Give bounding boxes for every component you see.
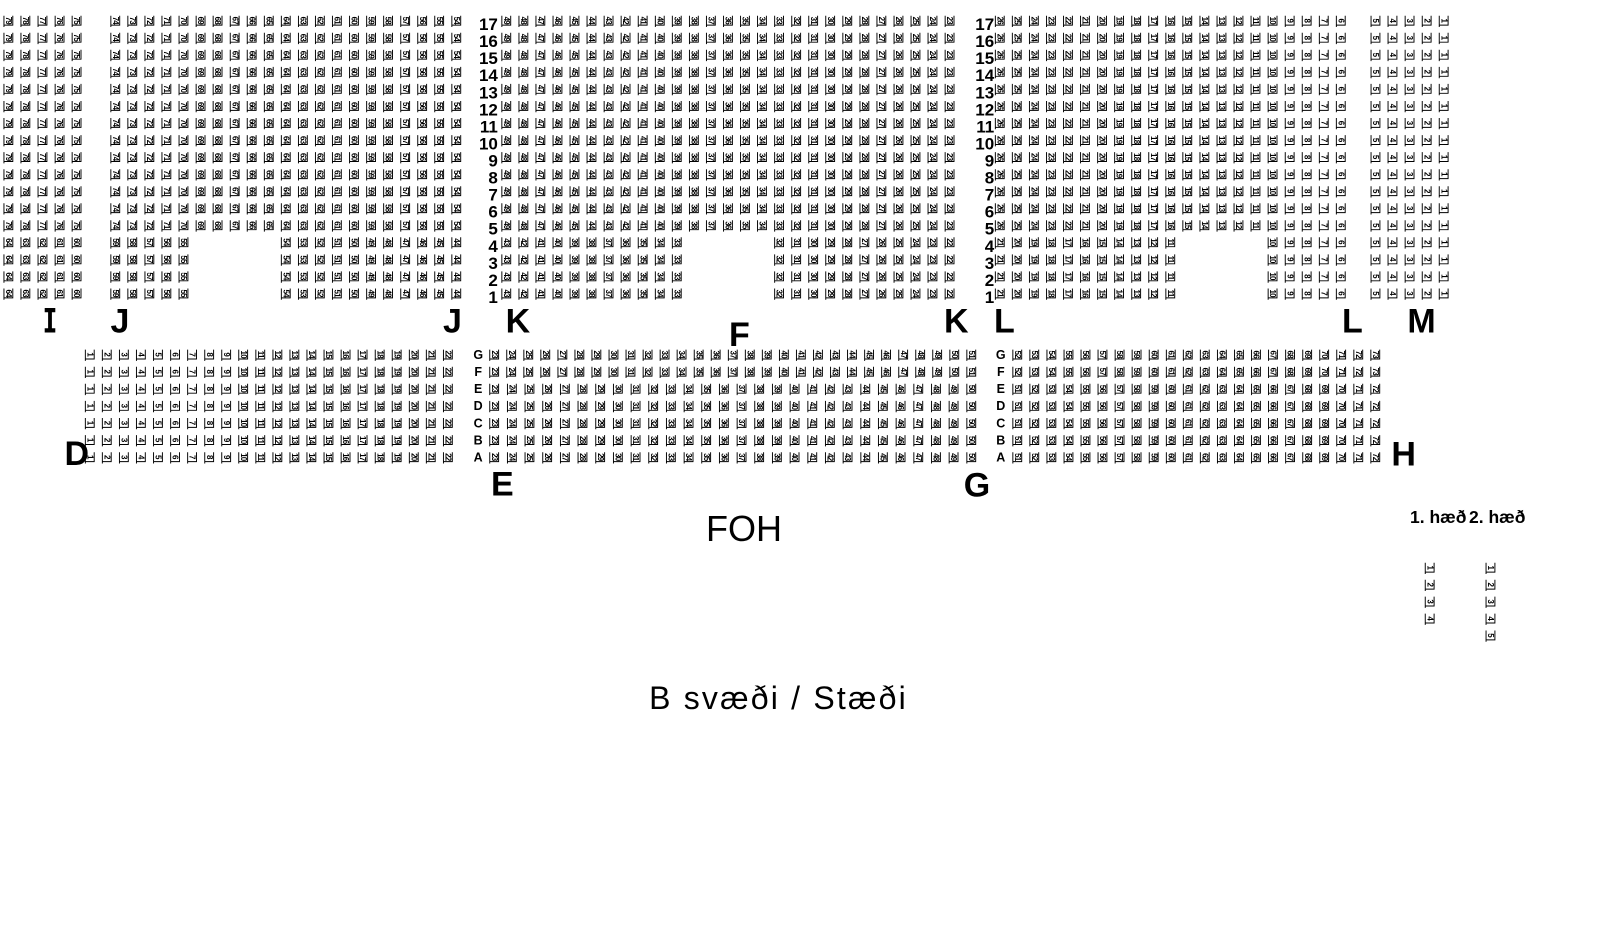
svg-text:B: B [474,433,483,447]
svg-text:2. hæð: 2. hæð [1469,507,1525,527]
svg-text:H: H [1391,436,1416,474]
svg-text:E: E [997,382,1005,396]
svg-text:D: D [65,435,90,473]
svg-text:D: D [474,399,483,413]
svg-text:1: 1 [985,288,994,307]
svg-text:L: L [994,303,1015,341]
svg-text:K: K [506,303,531,341]
svg-text:E: E [491,466,514,504]
svg-text:J: J [443,303,462,341]
svg-text:D: D [996,399,1005,413]
svg-text:A: A [996,451,1005,465]
svg-text:G: G [964,467,990,505]
svg-text:1: 1 [488,288,497,307]
svg-text:FOH: FOH [706,508,782,549]
svg-text:B: B [996,433,1005,447]
svg-text:C: C [996,416,1005,430]
svg-text:G: G [996,348,1006,362]
svg-text:K: K [944,303,969,341]
svg-text:F: F [729,316,750,354]
svg-text:C: C [474,416,483,430]
svg-text:E: E [474,382,482,396]
svg-text:J: J [111,303,130,341]
svg-text:1. hæð: 1. hæð [1410,507,1466,527]
svg-text:A: A [474,451,483,465]
svg-text:B svæði / Stæði: B svæði / Stæði [649,680,908,716]
svg-text:F: F [997,365,1005,379]
svg-text:G: G [473,348,483,362]
svg-text:M: M [1407,303,1435,341]
svg-text:L: L [1342,303,1363,341]
svg-text:F: F [474,365,482,379]
